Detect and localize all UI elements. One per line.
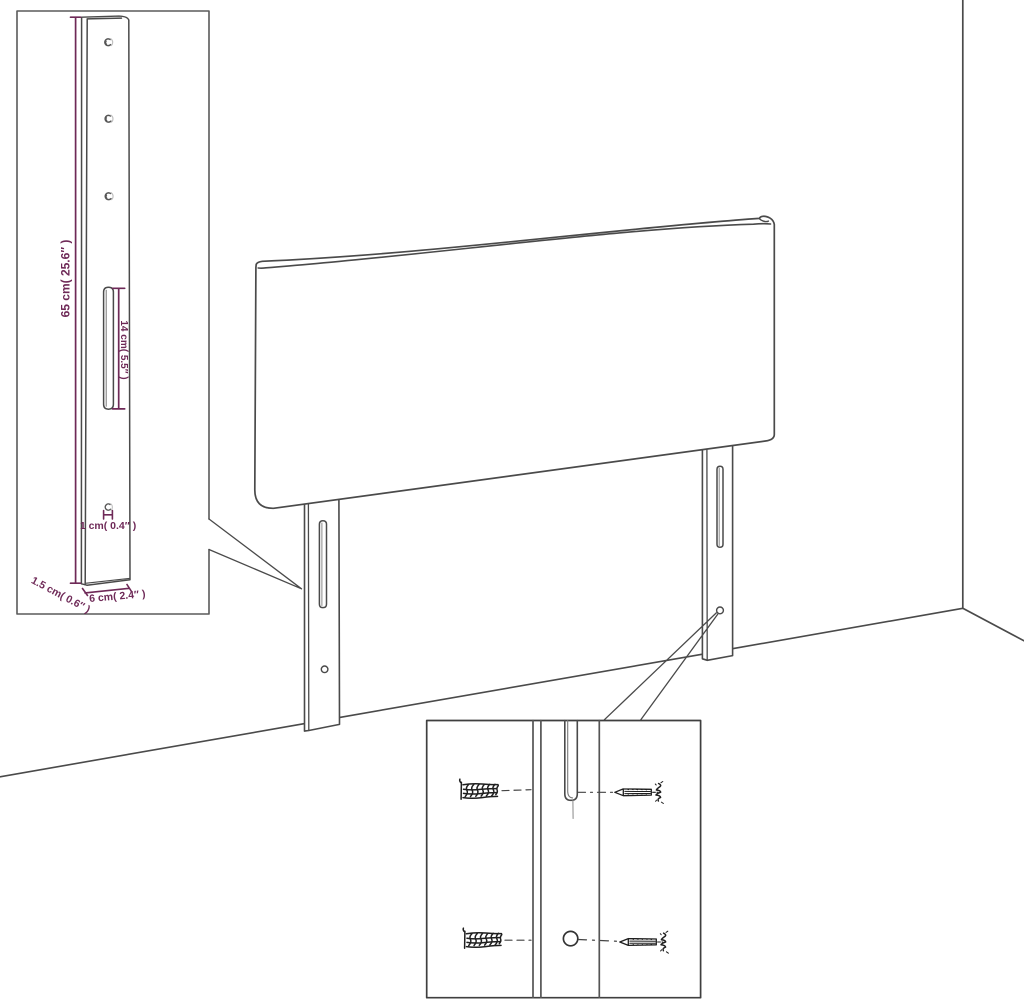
svg-text:1.5 cm( 0.6″ ): 1.5 cm( 0.6″ )	[29, 575, 92, 616]
svg-text:6 cm( 2.4″ ): 6 cm( 2.4″ )	[89, 588, 146, 605]
svg-text:1 cm( 0.4″ ): 1 cm( 0.4″ )	[80, 520, 136, 532]
svg-text:65 cm( 25.6″ ): 65 cm( 25.6″ )	[58, 240, 72, 318]
svg-text:14 cm( 5.5″ ): 14 cm( 5.5″ )	[118, 320, 129, 379]
